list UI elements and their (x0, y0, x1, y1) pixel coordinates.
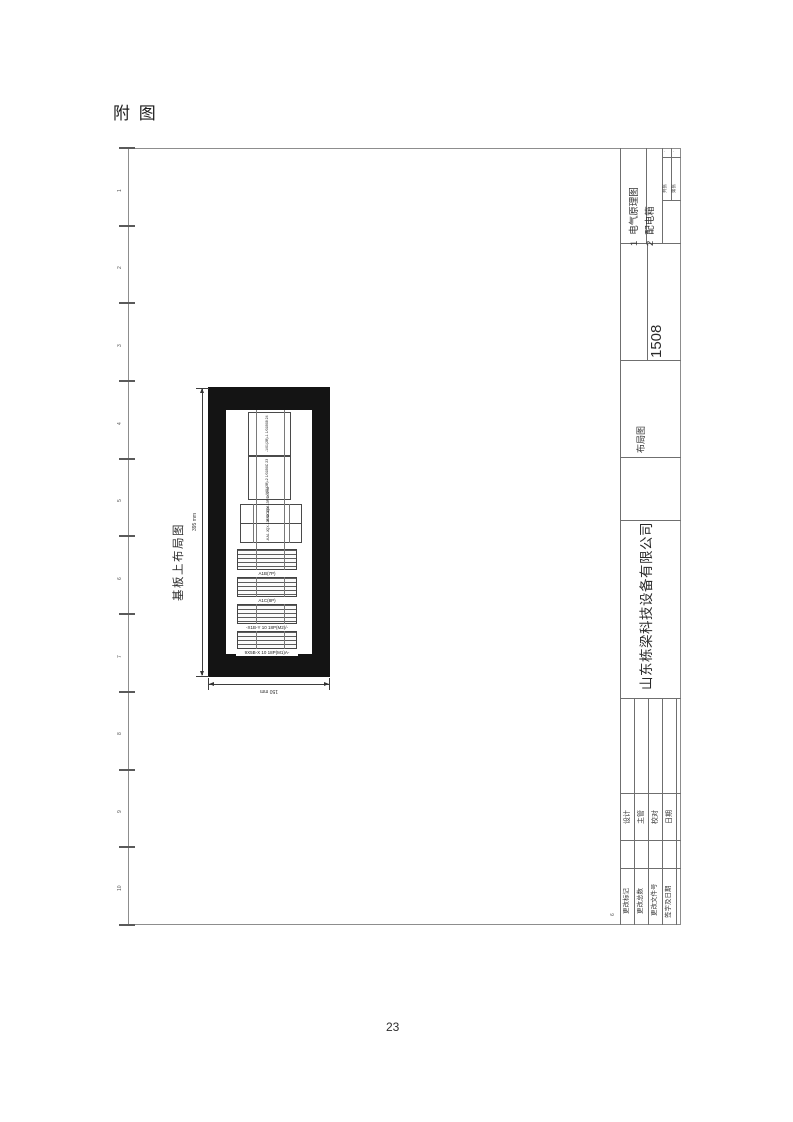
title-block-line (676, 698, 677, 925)
doc-type-1-label: 电气原理图 (629, 187, 640, 235)
company-name: 山东栋梁科技设备有限公司 (640, 522, 654, 690)
zone-tick (119, 458, 135, 460)
title-block-line (620, 868, 681, 869)
field-check: 校对 (652, 810, 659, 824)
field-date: 日期 (666, 810, 673, 824)
document-page: 附 图 1 2 3 4 5 6 7 8 9 10 6 1电气原理图 (0, 0, 793, 1122)
zone-label: 5 (118, 499, 123, 502)
frame-border-bottom (128, 924, 681, 925)
dimension-arrow-down (200, 671, 204, 676)
terminal-strip-1 (237, 549, 297, 570)
zone-label: 3 (118, 344, 123, 347)
frame-border-top (128, 148, 681, 149)
field-change-fileno: 更改文件号 (652, 884, 659, 917)
relay-ka1-label: -KA1 JQX-13F/DC24V (267, 506, 271, 541)
zone-label: 6 (118, 577, 123, 580)
zone-tick (119, 302, 135, 304)
zone-tick (119, 924, 135, 926)
relay-block-ka1 (240, 523, 302, 543)
title-block-line (662, 200, 681, 201)
doc-type-1-no: 1 (629, 241, 640, 246)
terminal-strip-2 (237, 577, 297, 597)
title-block-line (648, 698, 649, 925)
doc-type-1: 1电气原理图 (630, 187, 640, 246)
dimension-line-width (208, 684, 330, 685)
dimension-arrow-left (209, 682, 214, 686)
title-block-line (620, 840, 681, 841)
zone-label: 4 (118, 422, 123, 425)
title-block-line (620, 793, 681, 794)
page-number: 23 (386, 1020, 399, 1034)
field-design: 设计 (624, 810, 631, 824)
component-box-1-label: -1/01(2B)-1 1/01B08 24 (266, 415, 270, 452)
zone-label: 1 (118, 189, 123, 192)
zone-tick (119, 147, 135, 149)
zone-label: 2 (118, 266, 123, 269)
frame-border-right (680, 148, 681, 925)
title-block-line (634, 698, 635, 925)
dimension-arrow-right (324, 682, 329, 686)
terminal-strip-3-label: -X1B-Y 10 18P(M2)/- (236, 624, 298, 631)
sheet-cell-total: 共张 (663, 184, 668, 193)
title-block-line (662, 698, 663, 925)
zone-tick (119, 380, 135, 382)
field-change-count: 更改总数 (638, 888, 645, 914)
terminal-strip-4 (237, 631, 297, 649)
doc-type-2-no: 2 (645, 241, 656, 246)
sheet-cell-number: 第张 (672, 184, 677, 193)
terminal-strip-3 (237, 604, 297, 624)
title-block-line (620, 457, 681, 458)
din-rail (256, 410, 257, 654)
dimension-line-height (202, 389, 203, 675)
zone-tick (119, 535, 135, 537)
zone-tick (119, 613, 135, 615)
field-supervisor: 主管 (638, 810, 645, 824)
relay-block-ka2 (240, 504, 302, 524)
drawing-number: 1508 (649, 325, 664, 358)
attachment-heading: 附 图 (113, 99, 158, 124)
dimension-width-value: 150 mm (252, 688, 286, 693)
title-block-separator (620, 148, 621, 925)
dimension-height-value: 395 mm (193, 513, 198, 531)
drawing-title: 布局图 (637, 426, 646, 453)
corner-mark: · (664, 149, 665, 154)
terminal-strip-2-label: A1C(8P) (236, 597, 298, 604)
doc-type-2-label: 配电箱 (645, 206, 656, 235)
zone-tick (119, 225, 135, 227)
relay-divider (289, 504, 290, 543)
terminal-strip-4-label: 9X5B-X 10 18P(M1)A- (236, 649, 298, 656)
doc-type-2: 2配电箱 (646, 206, 656, 246)
title-block-line (662, 148, 663, 243)
title-block-line (620, 520, 681, 521)
zone-tick (119, 846, 135, 848)
din-rail (284, 410, 285, 654)
zone-label: 8 (118, 732, 123, 735)
layout-drawing-title: 基板上布局图 (174, 523, 186, 601)
dimension-arrow-up (200, 388, 204, 393)
zone-label: 10 (118, 885, 123, 891)
corner-mark: · (673, 149, 674, 154)
zone-label: 7 (118, 655, 123, 658)
field-sign-date: 签字及日期 (666, 886, 673, 919)
relay-divider (253, 504, 254, 543)
zone-tick (119, 769, 135, 771)
field-change-mark: 更改标记 (624, 888, 631, 914)
zone-label: 9 (118, 810, 123, 813)
zone-tick (119, 691, 135, 693)
terminal-strip-1-label: A1B(7P) (236, 570, 298, 577)
dimension-ext-line (329, 678, 330, 690)
dimension-ext-line (196, 676, 209, 677)
title-block-line (620, 698, 681, 699)
zone-label-corner: 6 (611, 913, 616, 916)
title-block-line (662, 157, 681, 158)
title-block-line (620, 360, 681, 361)
